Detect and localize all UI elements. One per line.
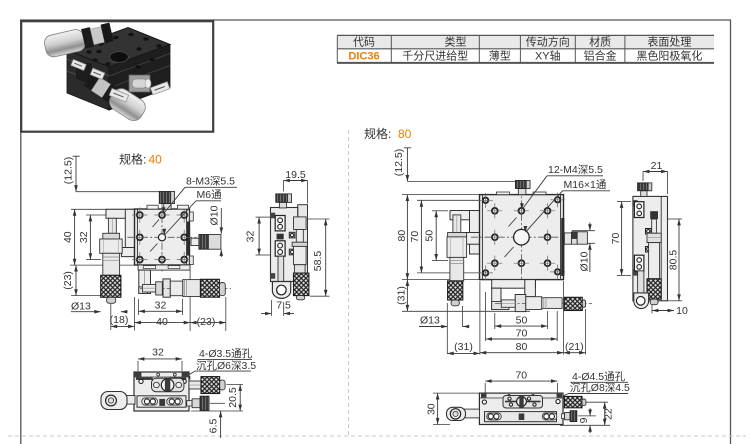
svg-text:M16×1通: M16×1通 [564,179,607,191]
svg-text:40: 40 [62,231,74,243]
svg-text:类型: 类型 [445,35,467,49]
svg-text:(12.5): (12.5) [393,149,405,176]
svg-text:Ø10: Ø10 [209,205,221,225]
svg-text:代码: 代码 [353,36,375,49]
svg-text:(12.5): (12.5) [63,157,75,184]
svg-text:沉孔Ø8深4.5: 沉孔Ø8深4.5 [570,381,630,394]
svg-text:58.5: 58.5 [312,251,324,272]
svg-text:80: 80 [396,230,408,242]
svg-text:8-M3深5.5: 8-M3深5.5 [186,176,235,188]
svg-text:(21): (21) [565,341,584,353]
svg-text:32: 32 [152,346,164,358]
svg-text:(23): (23) [62,271,74,290]
svg-text:(23): (23) [197,316,216,328]
svg-text:70: 70 [610,233,622,245]
svg-text:传动方向: 传动方向 [526,35,570,49]
svg-text:DIC36: DIC36 [348,50,379,62]
svg-text:40: 40 [156,316,168,328]
svg-text:70: 70 [409,231,421,243]
svg-text:32: 32 [245,231,257,243]
svg-text:80: 80 [516,341,528,353]
svg-text:材质: 材质 [589,35,611,49]
svg-text:6.5: 6.5 [208,419,220,434]
svg-text:40: 40 [149,153,163,167]
svg-text:4-Ø3.5通孔: 4-Ø3.5通孔 [199,347,253,360]
svg-text:(18): (18) [110,314,129,326]
svg-text:千分尺进给型: 千分尺进给型 [402,48,468,62]
svg-text:Ø13: Ø13 [71,300,91,312]
svg-text:XY轴: XY轴 [535,48,561,62]
svg-text:80.5: 80.5 [667,250,679,271]
svg-text:沉孔Ø6深3.5: 沉孔Ø6深3.5 [196,359,256,372]
svg-text:10: 10 [676,305,688,317]
svg-text:50: 50 [423,230,435,242]
svg-text:规格:: 规格: [119,152,146,167]
svg-text:黑色阳极氧化: 黑色阳极氧化 [636,48,702,62]
svg-text:50: 50 [516,314,528,326]
svg-text:21: 21 [651,160,663,172]
svg-text:70: 70 [515,370,527,382]
svg-text:薄型: 薄型 [489,48,511,62]
svg-text:Ø13: Ø13 [420,314,440,326]
svg-text:70: 70 [516,327,528,339]
svg-text:铝合金: 铝合金 [584,48,617,62]
svg-text:Ø10: Ø10 [578,251,590,271]
svg-text:30: 30 [426,403,438,415]
svg-text:4-Ø4.5通孔: 4-Ø4.5通孔 [572,370,626,383]
svg-text:32: 32 [78,231,90,243]
svg-text:19.5: 19.5 [285,169,306,181]
svg-text:22: 22 [603,408,615,420]
svg-text:M6通: M6通 [197,189,223,201]
svg-text:32: 32 [155,300,167,312]
svg-text:12-M4深5.5: 12-M4深5.5 [548,164,603,176]
svg-text:规格:: 规格: [364,126,391,141]
svg-text:表面处理: 表面处理 [647,35,691,49]
svg-text:9: 9 [578,417,590,423]
svg-text:20.5: 20.5 [227,387,239,408]
svg-text:(31): (31) [396,286,408,305]
svg-text:(31): (31) [454,341,473,353]
svg-text:80: 80 [398,127,412,141]
